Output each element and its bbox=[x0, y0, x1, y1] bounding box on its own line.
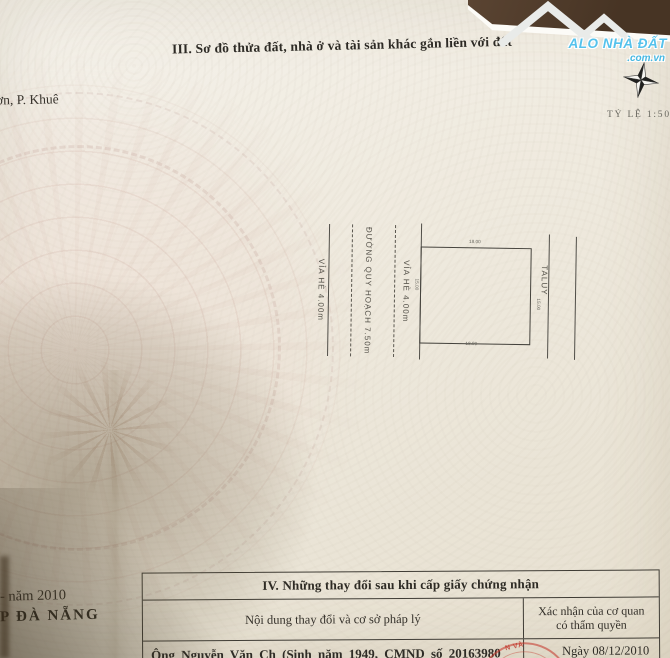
page-fold-shadow bbox=[104, 370, 130, 658]
watermark-domain: .com.vn bbox=[627, 53, 665, 64]
entry-date: Ngày 08/12/2010 bbox=[562, 643, 649, 658]
road-boundary-dashed-line bbox=[393, 225, 396, 357]
table-entry-row: Ông Nguyễn Văn Ch (Sinh năm 1949, CMND s… bbox=[143, 638, 659, 658]
taluy-line bbox=[574, 237, 577, 360]
parcel-dim-top: 18.00 bbox=[469, 240, 481, 245]
plot-diagram: VỈA HÈ 4.00m ĐƯỜNG QUY HOẠCH 7.50m VỈA H… bbox=[299, 213, 611, 378]
entry-content-cell: Ông Nguyễn Văn Ch (Sinh năm 1949, CMND s… bbox=[143, 639, 523, 658]
map-scale-label: TỶ LỆ 1:500 bbox=[607, 110, 670, 120]
table-title-row: IV. Những thay đổi sau khi cấp giấy chứn… bbox=[143, 570, 659, 600]
parcel-dim-right: 15.00 bbox=[535, 298, 540, 310]
col-header-content: Nội dung thay đổi và cơ sở pháp lý bbox=[143, 598, 523, 640]
city-fragment: P ĐÀ NẴNG bbox=[0, 607, 100, 626]
compass-north-icon bbox=[621, 60, 661, 100]
certificate-photo: III. Sơ đồ thửa đất, nhà ở và tài sản kh… bbox=[0, 0, 670, 658]
land-parcel-outline bbox=[419, 246, 532, 345]
road-boundary-dashed-line bbox=[350, 224, 353, 356]
desk-edge-sliver bbox=[0, 556, 9, 658]
parcel-dim-left: 15.00 bbox=[414, 278, 419, 290]
taluy-label: TALUY bbox=[540, 265, 549, 295]
table-header-row: Nội dung thay đổi và cơ sở pháp lý Xác n… bbox=[143, 597, 659, 641]
sidewalk-right-label: VỈA HÈ 4.00m bbox=[401, 260, 411, 322]
parcel-dim-bottom: 18.00 bbox=[465, 342, 477, 347]
changes-table: IV. Những thay đổi sau khi cấp giấy chứn… bbox=[142, 569, 661, 658]
col-header-confirmation: Xác nhận của cơ quan có thẩm quyền bbox=[523, 597, 659, 638]
watermark-brand: ALO NHÀ ĐẤT bbox=[569, 36, 668, 51]
taluy-line bbox=[547, 234, 550, 358]
entry-text: Ông Nguyễn Văn Ch (Sinh năm 1949, CMND s… bbox=[151, 645, 501, 658]
year-fragment: - năm 2010 bbox=[0, 587, 66, 606]
sidewalk-edge-line bbox=[327, 224, 330, 356]
sidewalk-left-label: VỈA HÈ 4.00m bbox=[316, 259, 326, 321]
road-label: ĐƯỜNG QUY HOẠCH 7.50m bbox=[363, 227, 374, 355]
section4-title: IV. Những thay đổi sau khi cấp giấy chứn… bbox=[262, 576, 539, 594]
address-fragment: ơn, P. Khuê bbox=[0, 91, 59, 108]
